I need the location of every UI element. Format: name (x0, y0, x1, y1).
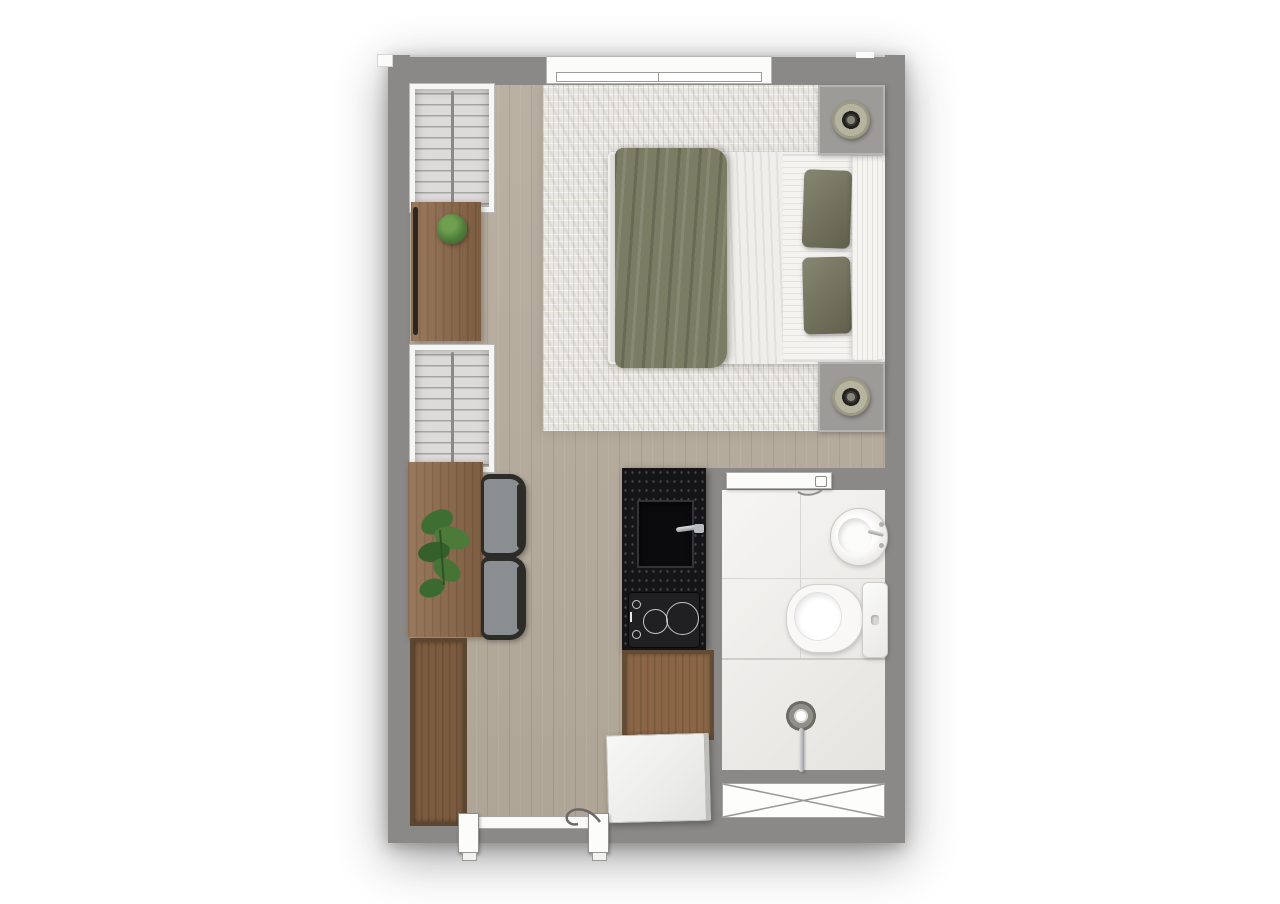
wall-bathroom-shower (722, 770, 885, 783)
wall-cap-top-right (856, 52, 874, 58)
console-rail (413, 207, 418, 335)
kitchen-sink (637, 500, 694, 568)
bathroom-sliding-door (726, 472, 832, 489)
chair-2 (481, 556, 526, 640)
bed-duvet-olive (615, 148, 727, 368)
table-lamp-bottom (832, 378, 870, 416)
pillow-2 (802, 256, 852, 334)
floor-plan-canvas (0, 0, 1280, 904)
chair-1 (481, 474, 526, 558)
bed-sheet (727, 152, 783, 364)
tall-cabinet (410, 638, 467, 826)
cistern-shelf (862, 582, 888, 658)
burner-large (666, 602, 699, 635)
bed-folded-duvet (852, 156, 885, 360)
entry-door-foot-left (462, 852, 477, 861)
tile-line-horizontal-2 (722, 658, 885, 660)
wardrobe-lower (410, 345, 494, 472)
wall-left (388, 55, 410, 843)
refrigerator (606, 733, 711, 824)
desk-table (408, 462, 483, 637)
cooktop-knob-2 (632, 630, 641, 639)
washbasin-knob-1 (879, 522, 884, 527)
entry-door-post-right (588, 813, 609, 853)
wall-right (885, 55, 905, 843)
pillow-1 (802, 169, 853, 249)
cooktop-control-strip (630, 612, 632, 622)
window-glass (556, 72, 762, 82)
tile-line-horizontal-1 (722, 578, 885, 579)
toilet (786, 584, 863, 653)
kitchen-wood-counter (622, 650, 714, 740)
service-shaft (722, 783, 885, 818)
entry-door-post-left (458, 813, 479, 853)
table-lamp-top (832, 101, 870, 139)
kitchen-faucet-base (694, 524, 704, 533)
wall-cap-top-left (377, 54, 393, 67)
shower-hose (799, 728, 804, 772)
entry-door-foot-right (592, 852, 607, 861)
washbasin-knob-2 (879, 543, 884, 548)
entry-door (466, 816, 602, 829)
burner-small (643, 609, 668, 634)
wardrobe-upper (410, 84, 494, 212)
window-divider (658, 72, 659, 82)
washbasin (830, 508, 888, 566)
round-plant (437, 214, 467, 244)
cooktop-knob-1 (632, 600, 641, 609)
